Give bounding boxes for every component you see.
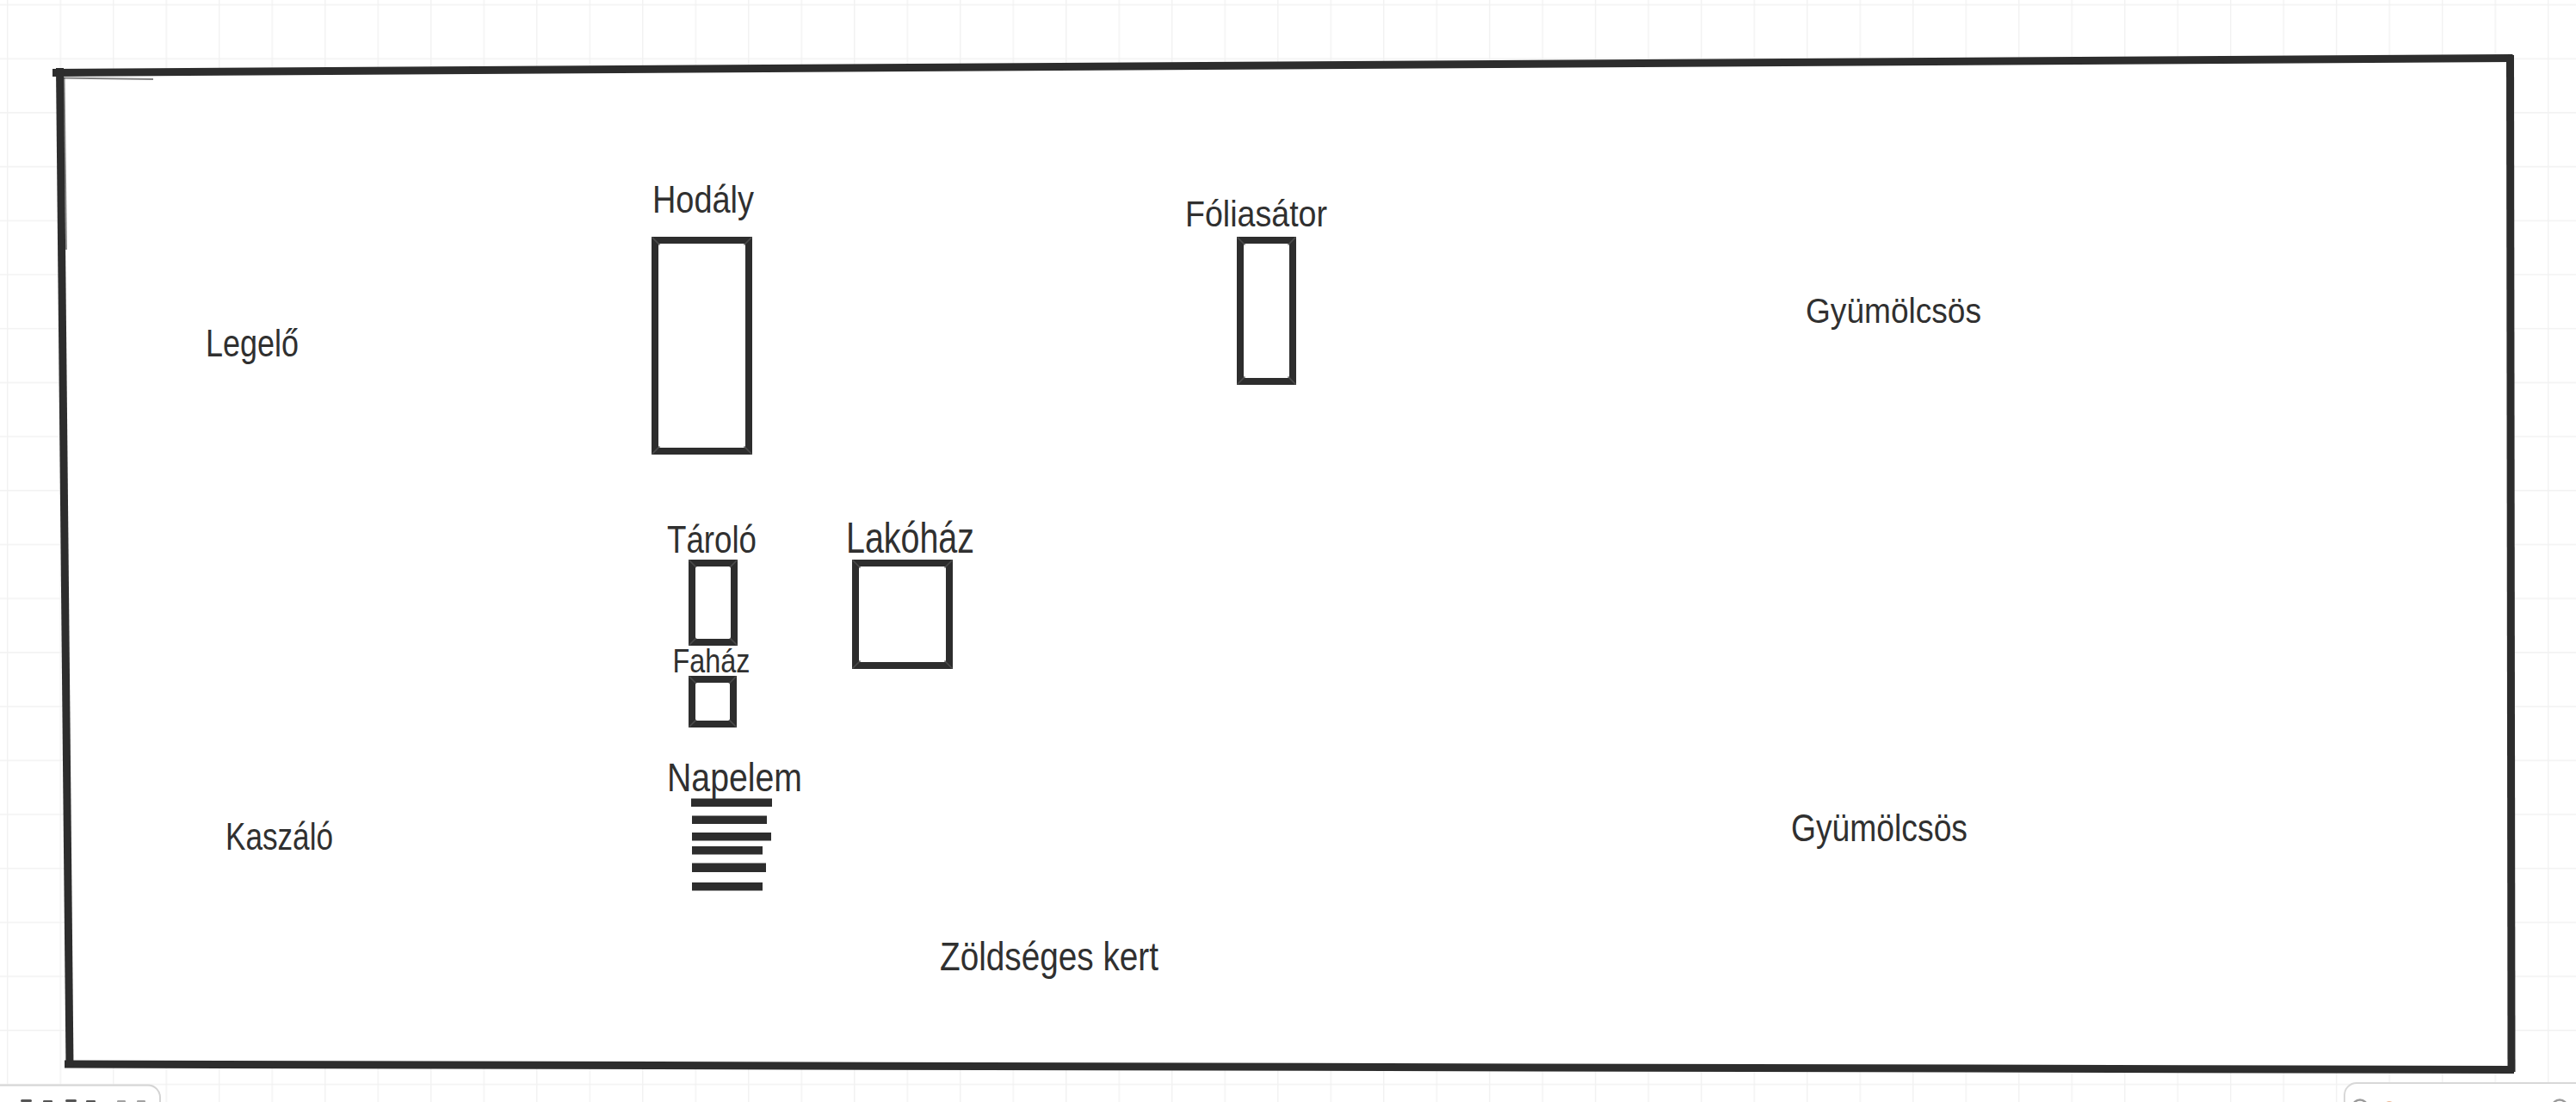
svg-text:Legelő: Legelő: [206, 321, 299, 365]
svg-text:Fóliasátor: Fóliasátor: [1185, 194, 1327, 234]
svg-text:Lakóház: Lakóház: [846, 514, 974, 562]
svg-text:Tároló: Tároló: [667, 518, 757, 560]
svg-text:Faház: Faház: [673, 642, 751, 679]
svg-text:Zöldséges kert: Zöldséges kert: [940, 933, 1158, 979]
svg-text:Kaszáló: Kaszáló: [225, 815, 333, 857]
svg-text:Hodály: Hodály: [652, 178, 754, 220]
svg-text:Gyümölcsös: Gyümölcsös: [1791, 807, 1968, 849]
svg-text:Napelem: Napelem: [667, 755, 802, 800]
svg-text:Gyümölcsös: Gyümölcsös: [1806, 292, 1981, 330]
